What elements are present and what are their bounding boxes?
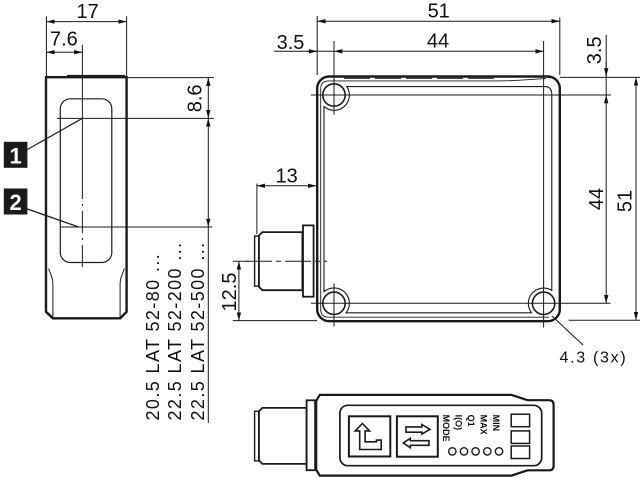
svg-text:4.3 (3x): 4.3 (3x) (560, 350, 628, 367)
svg-text:7.6: 7.6 (50, 29, 78, 51)
svg-text:3.5: 3.5 (584, 36, 606, 64)
svg-text:8.6: 8.6 (185, 84, 207, 112)
svg-text:20.5 LAT 52-80 ...: 20.5 LAT 52-80 ... (143, 253, 163, 421)
svg-text:22.5 LAT 52-200 ...: 22.5 LAT 52-200 ... (165, 241, 185, 420)
svg-text:44: 44 (427, 30, 449, 52)
svg-text:2: 2 (9, 190, 21, 215)
svg-text:51: 51 (615, 190, 637, 212)
svg-text:1: 1 (9, 144, 21, 169)
svg-text:MIN: MIN (491, 415, 501, 432)
svg-text:22.5 LAT 52-500 ...: 22.5 LAT 52-500 ... (188, 241, 208, 420)
svg-text:MODE: MODE (441, 415, 451, 442)
svg-text:13: 13 (275, 165, 297, 187)
svg-text:12.5: 12.5 (219, 273, 241, 312)
svg-text:3.5: 3.5 (277, 32, 305, 54)
svg-text:51: 51 (428, 1, 450, 23)
svg-text:I(O): I(O) (454, 415, 464, 431)
svg-text:MAX: MAX (479, 415, 489, 435)
svg-text:17: 17 (76, 1, 98, 23)
svg-text:44: 44 (586, 188, 608, 210)
svg-text:Q1: Q1 (466, 415, 476, 427)
